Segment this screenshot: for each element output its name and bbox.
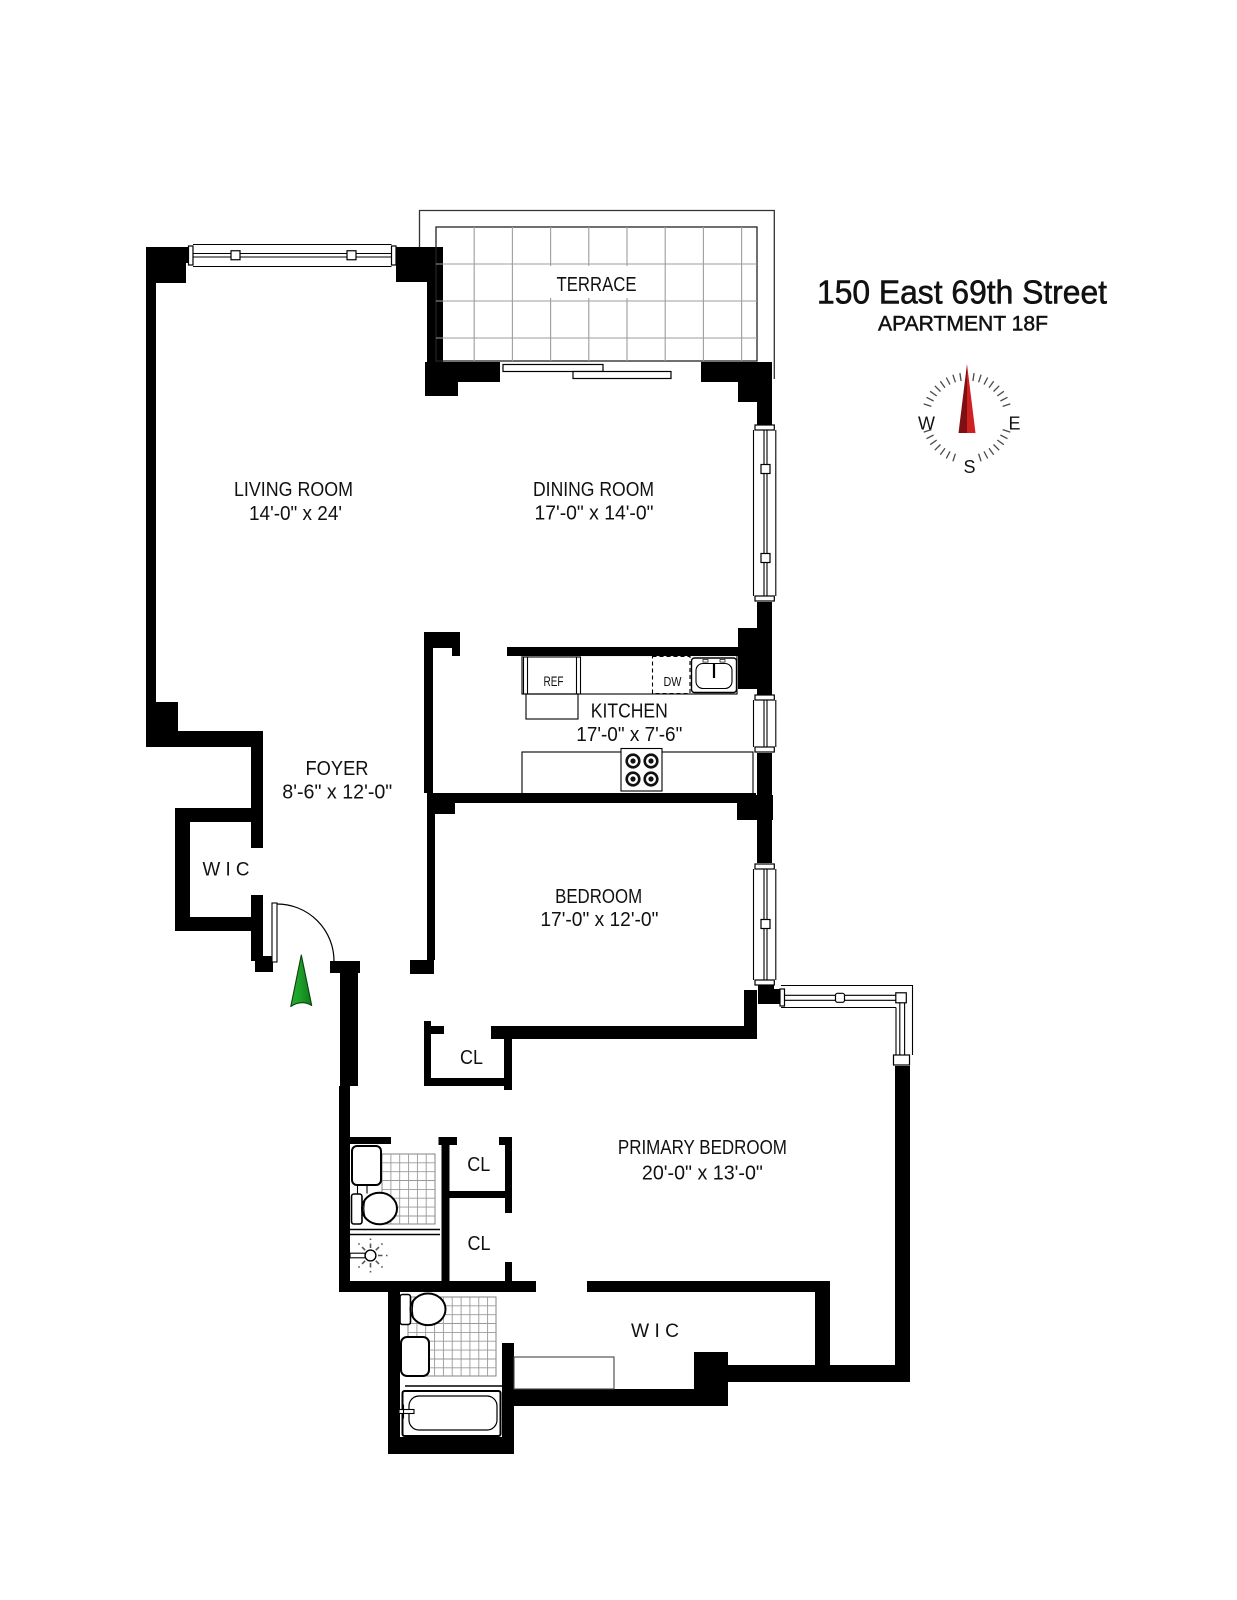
svg-text:14'-0" x 24': 14'-0" x 24': [249, 503, 342, 525]
svg-text:S: S: [963, 457, 975, 477]
svg-text:17'-0" x 12'-0": 17'-0" x 12'-0": [540, 909, 658, 931]
svg-text:FOYER: FOYER: [306, 758, 369, 780]
svg-text:TERRACE: TERRACE: [557, 274, 637, 296]
svg-text:CL: CL: [460, 1047, 483, 1069]
svg-text:APARTMENT 18F: APARTMENT 18F: [878, 312, 1048, 336]
svg-text:W I C: W I C: [631, 1321, 679, 1342]
svg-text:W I C: W I C: [203, 860, 250, 881]
svg-text:KITCHEN: KITCHEN: [591, 701, 668, 723]
svg-text:E: E: [1008, 414, 1020, 434]
svg-text:LIVING ROOM: LIVING ROOM: [234, 479, 353, 501]
svg-text:17'-0" x 14'-0": 17'-0" x 14'-0": [535, 503, 654, 525]
svg-text:8'-6" x 12'-0": 8'-6" x 12'-0": [282, 782, 392, 804]
svg-text:DW: DW: [664, 674, 683, 689]
svg-text:PRIMARY BEDROOM: PRIMARY BEDROOM: [618, 1137, 787, 1159]
svg-text:CL: CL: [468, 1233, 491, 1255]
svg-text:150 East 69th Street: 150 East 69th Street: [817, 275, 1108, 312]
svg-text:BEDROOM: BEDROOM: [555, 886, 642, 908]
svg-text:W: W: [918, 414, 935, 434]
svg-text:CL: CL: [467, 1154, 490, 1176]
svg-text:17'-0" x 7'-6": 17'-0" x 7'-6": [576, 724, 682, 746]
svg-text:20'-0" x 13'-0": 20'-0" x 13'-0": [642, 1163, 763, 1185]
svg-text:REF: REF: [544, 674, 564, 689]
svg-text:DINING ROOM: DINING ROOM: [533, 479, 654, 501]
